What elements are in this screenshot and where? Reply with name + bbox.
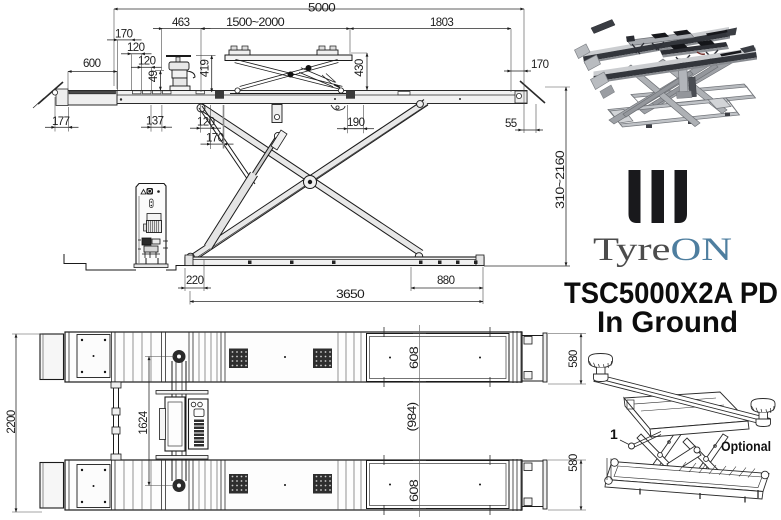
svg-text:220: 220 [186,275,204,287]
svg-text:1: 1 [610,426,618,442]
svg-text:1624: 1624 [138,410,150,434]
svg-text:170: 170 [206,133,224,145]
svg-text:608: 608 [409,347,421,369]
svg-text:49: 49 [148,71,160,83]
svg-text:880: 880 [437,275,455,287]
svg-text:120: 120 [197,117,215,129]
svg-text:170: 170 [531,59,549,71]
svg-text:430: 430 [354,59,366,77]
svg-text:Optional: Optional [721,438,771,454]
svg-text:170: 170 [115,29,133,41]
svg-text:580: 580 [568,350,580,368]
svg-text:1500~2000: 1500~2000 [226,17,284,29]
svg-text:580: 580 [568,454,580,472]
svg-text:310~2160: 310~2160 [555,151,567,209]
svg-text:In Ground: In Ground [597,306,738,339]
svg-text:600: 600 [83,58,101,70]
svg-text:55: 55 [505,118,517,130]
svg-text:137: 137 [146,116,164,128]
svg-text:(984): (984) [407,402,419,432]
svg-text:463: 463 [172,17,190,29]
svg-text:120: 120 [138,55,156,67]
svg-text:120: 120 [127,42,145,54]
svg-text:419: 419 [200,60,212,78]
svg-text:2200: 2200 [6,410,18,433]
svg-text:608: 608 [409,480,421,502]
svg-text:190: 190 [347,117,365,129]
svg-text:5000: 5000 [308,3,335,15]
svg-text:177: 177 [52,116,70,128]
svg-text:TyreON: TyreON [593,232,732,268]
svg-text:3650: 3650 [336,289,364,301]
svg-text:1803: 1803 [430,17,453,29]
